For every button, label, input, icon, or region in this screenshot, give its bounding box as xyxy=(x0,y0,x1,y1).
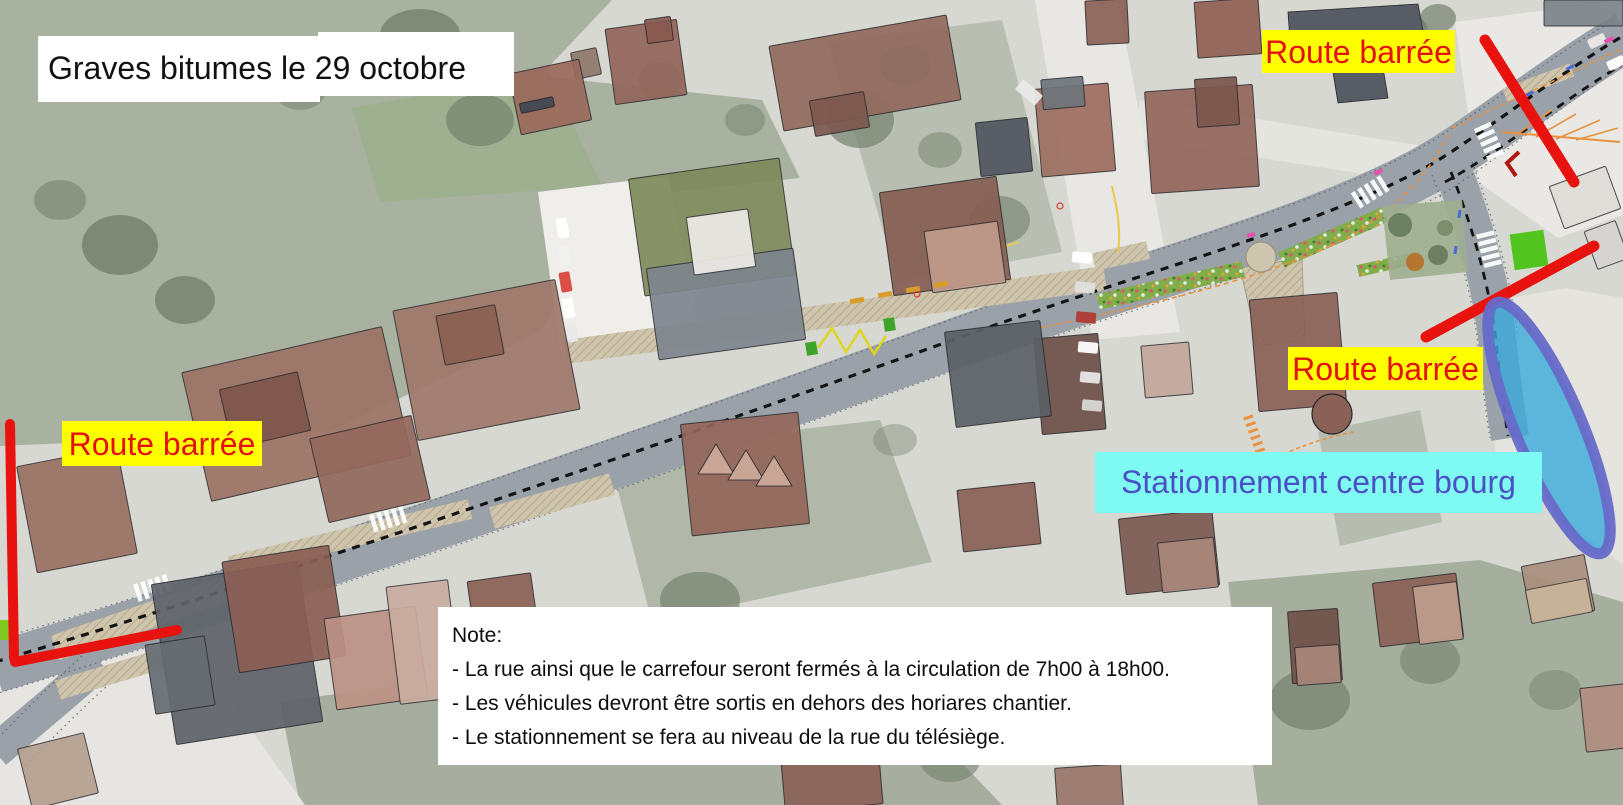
map-title: Graves bitumes le 29 octobre xyxy=(48,36,466,100)
note-heading: Note: xyxy=(452,619,1272,653)
note-item-2: - Les véhicules devront être sortis en d… xyxy=(452,687,1272,721)
parking-zone-label: Stationnement centre bourg xyxy=(1095,452,1542,513)
note-item-3: - Le stationnement se fera au niveau de … xyxy=(452,721,1272,755)
road-closed-label-top-right: Route barrée xyxy=(1262,30,1455,73)
road-closed-label-left: Route barrée xyxy=(62,421,262,466)
road-closure-map: Graves bitumes le 29 octobre Route barré… xyxy=(0,0,1623,805)
note-item-1: - La rue ainsi que le carrefour seront f… xyxy=(452,653,1272,687)
note-box: Note: - La rue ainsi que le carrefour se… xyxy=(438,607,1272,765)
road-closed-label-mid-right: Route barrée xyxy=(1288,347,1483,390)
